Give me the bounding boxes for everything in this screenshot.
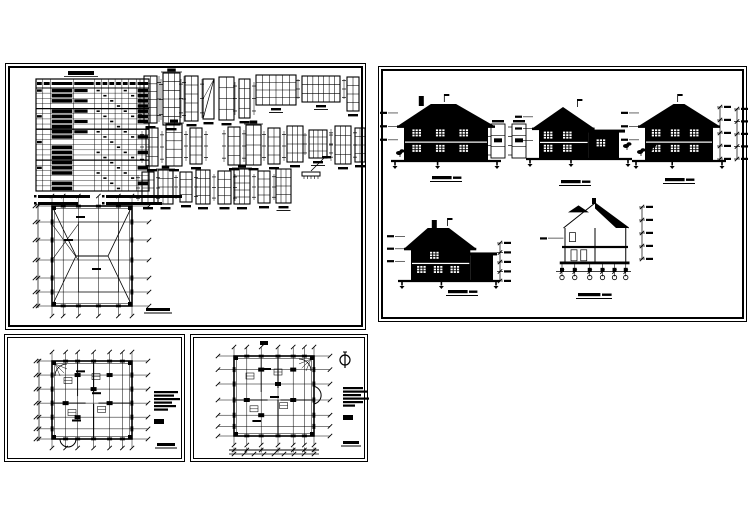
figure-caption bbox=[663, 178, 695, 184]
window-detail-figure bbox=[329, 126, 357, 169]
elevation-1 bbox=[380, 94, 501, 182]
window-detail-figure bbox=[222, 127, 246, 170]
roof-plan bbox=[33, 194, 151, 318]
window-detail-figure bbox=[252, 171, 276, 208]
figure-caption bbox=[559, 180, 591, 186]
sheet-floor-plan-upper-drawing bbox=[5, 335, 186, 463]
window-detail-figure bbox=[184, 128, 208, 169]
window-detail-figure bbox=[244, 121, 263, 171]
elevation-3 bbox=[621, 94, 726, 184]
notes-text-block bbox=[154, 391, 180, 411]
figure-caption bbox=[576, 293, 612, 299]
tree-shrub-mark bbox=[623, 142, 632, 150]
figure-caption bbox=[341, 441, 361, 446]
sheet-elevations-and-section bbox=[378, 66, 747, 322]
floor-plan-drawing bbox=[34, 350, 150, 450]
figure-caption bbox=[144, 308, 172, 313]
sill-detail-figure bbox=[302, 156, 331, 179]
tree-shrub-mark bbox=[637, 148, 646, 156]
sheet-floor-plan-ground-drawing bbox=[191, 335, 369, 463]
figure-caption bbox=[155, 443, 177, 448]
sheet-floor-plan-ground bbox=[190, 334, 368, 462]
figure-caption bbox=[430, 176, 462, 182]
window-detail-figure bbox=[303, 130, 333, 166]
sheet-window-door-schedule-and-roof-plan bbox=[5, 63, 366, 330]
level-dimension-column bbox=[639, 205, 653, 261]
floor-plan-drawing bbox=[216, 341, 332, 456]
window-detail-figure bbox=[164, 120, 184, 172]
north-arrow bbox=[340, 352, 350, 368]
elevation-2 bbox=[515, 99, 632, 186]
level-dimension-column bbox=[734, 107, 748, 161]
window-detail-figure bbox=[287, 126, 303, 167]
legend-solid-mark bbox=[343, 415, 353, 420]
wall-detail-column bbox=[508, 120, 526, 158]
figure-caption bbox=[446, 290, 478, 296]
cad-drawing-preview bbox=[0, 0, 749, 530]
window-detail-figure bbox=[276, 169, 291, 211]
window-detail-figure bbox=[262, 128, 286, 169]
window-detail-figure bbox=[347, 77, 359, 116]
sheet-window-door-schedule-and-roof-plan-drawing bbox=[6, 64, 367, 331]
window-detail-figure bbox=[233, 79, 256, 123]
window-detail-figure bbox=[296, 76, 346, 110]
window-detail-figure bbox=[196, 170, 210, 209]
notes-text-block bbox=[343, 387, 369, 407]
level-dimension-column bbox=[497, 241, 511, 283]
level-dimension-column bbox=[717, 105, 731, 161]
cross-section bbox=[540, 198, 631, 299]
window-detail-figure bbox=[174, 172, 198, 207]
legend-solid-mark bbox=[154, 419, 164, 424]
window-detail-figure bbox=[256, 75, 296, 113]
elevation-4 bbox=[387, 218, 500, 296]
door-window-schedule-table bbox=[34, 71, 182, 205]
window-detail-figure bbox=[219, 77, 234, 125]
window-detail-figure bbox=[179, 76, 204, 126]
window-detail-figure bbox=[203, 79, 214, 124]
sheet-floor-plan-upper bbox=[4, 334, 185, 462]
sheet-elevations-and-section-drawing bbox=[379, 67, 748, 323]
tree-shrub-mark bbox=[396, 149, 405, 157]
window-detail-figure bbox=[355, 128, 365, 167]
window-detail-figure bbox=[212, 171, 237, 209]
